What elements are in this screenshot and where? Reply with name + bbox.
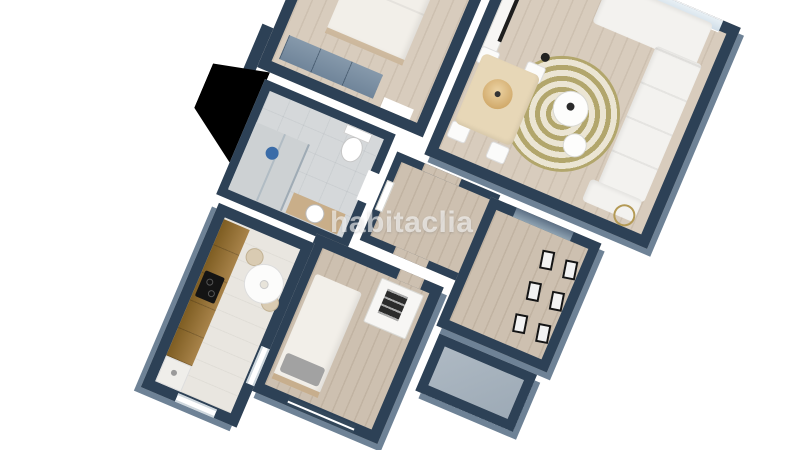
duvet-fold (346, 0, 424, 16)
double-bed (325, 0, 453, 66)
picture-frame (535, 323, 551, 344)
opening-to-bedroom2 (393, 247, 429, 268)
picture-frame-wall (507, 244, 584, 351)
picture-frame (549, 291, 565, 312)
picture-frame (526, 281, 542, 302)
window (175, 393, 217, 418)
door-opening (380, 97, 414, 120)
window (286, 397, 356, 433)
watermark: habitaclia (330, 206, 473, 240)
picture-frame (512, 313, 528, 334)
picture-frame (562, 259, 578, 280)
window-sill (287, 401, 354, 431)
picture-frame (539, 249, 555, 270)
floorplan-render-image: habitaclia (0, 0, 800, 450)
